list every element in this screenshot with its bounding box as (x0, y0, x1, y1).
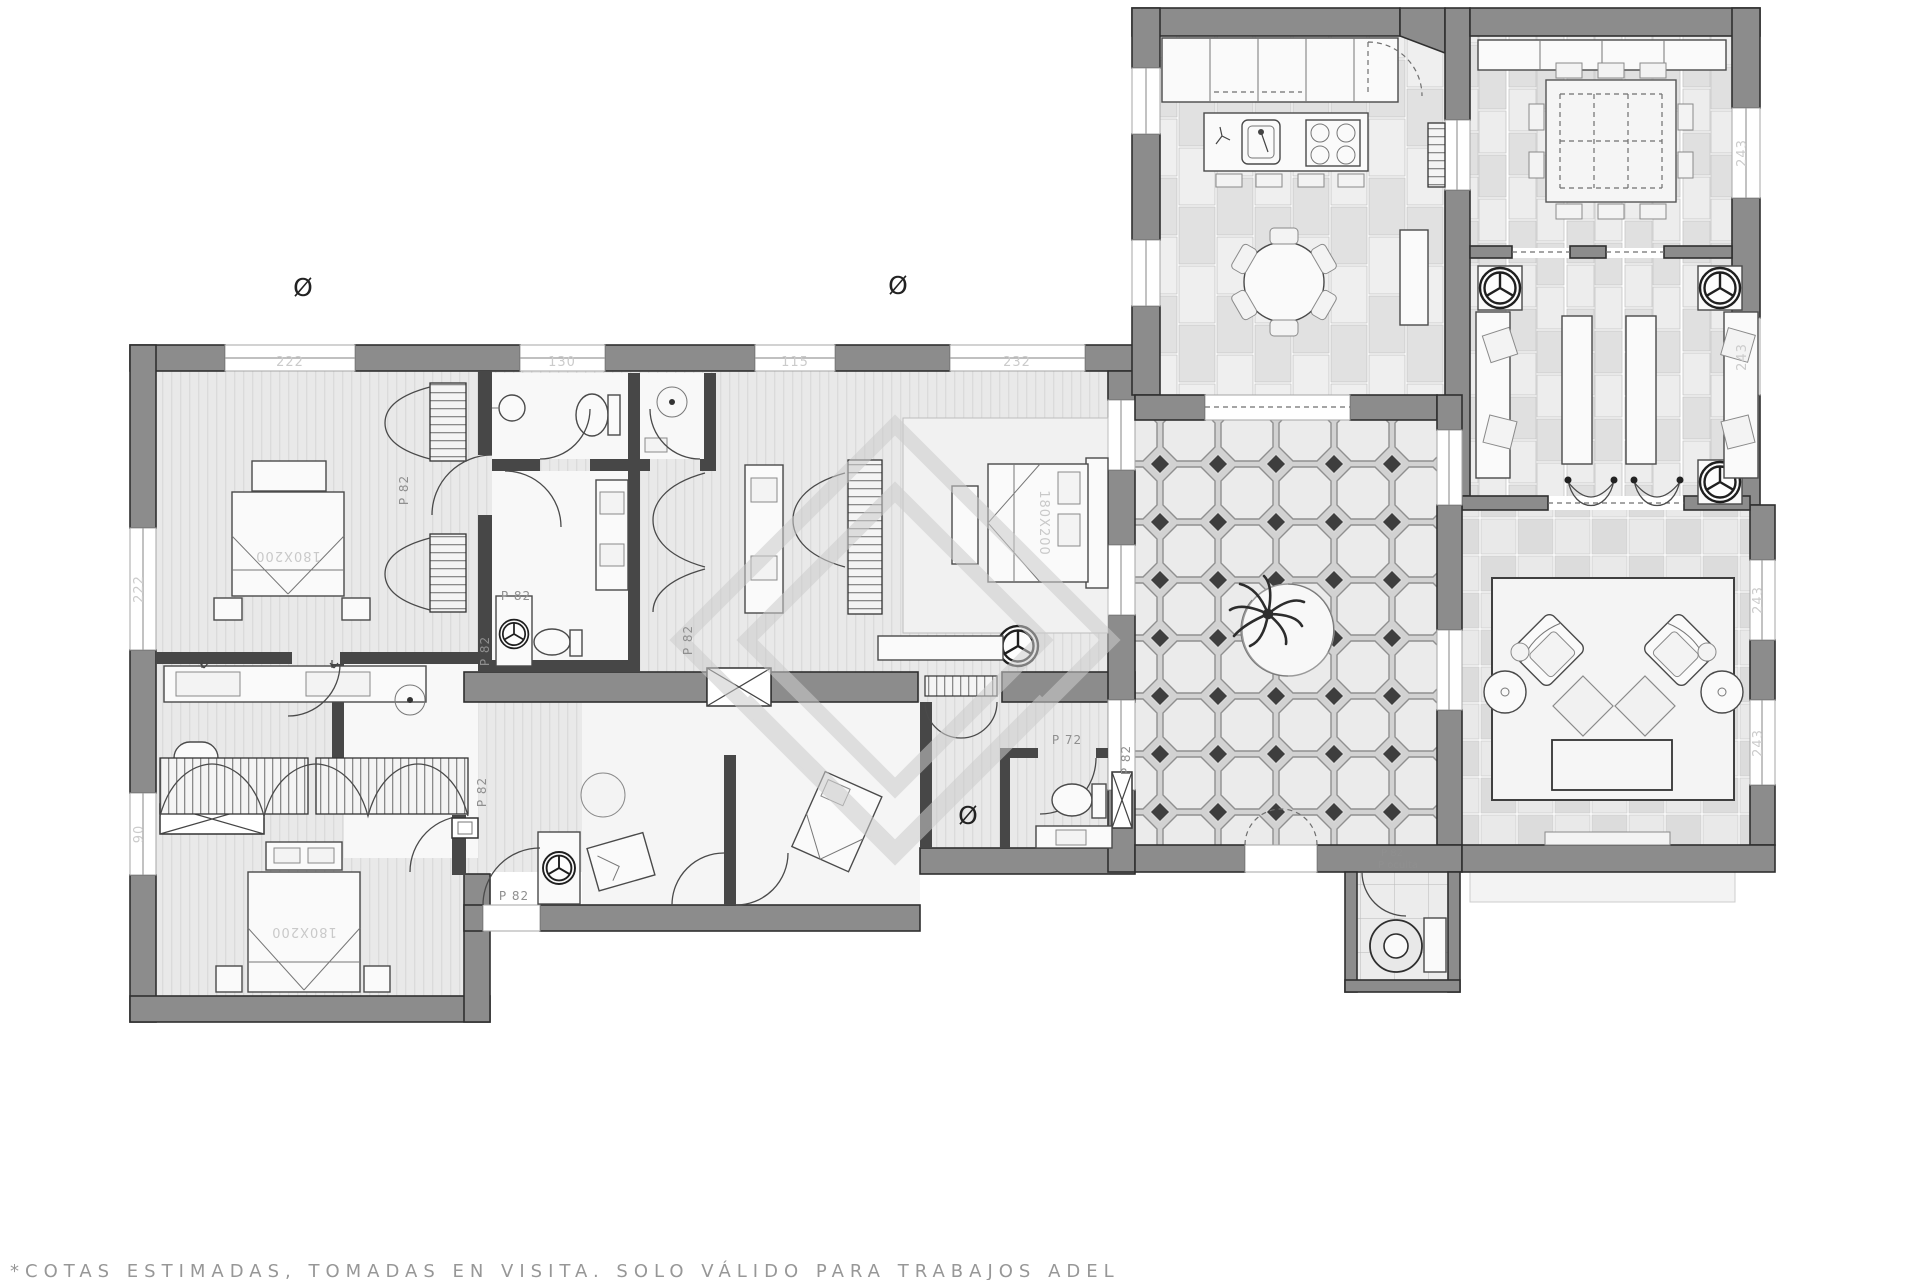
stool (1216, 174, 1242, 187)
cabinet (1424, 918, 1446, 972)
sink (600, 544, 624, 566)
door-label: P 82 (501, 589, 531, 603)
door-label: P 82 (397, 475, 411, 505)
toilet (534, 629, 570, 655)
door-label: P 82 (475, 777, 489, 807)
bed-size-label: 180X200 (1036, 490, 1051, 556)
toilet-tank (608, 395, 620, 435)
sink (600, 492, 624, 514)
bed-headboard (1086, 458, 1108, 588)
pass-through (1428, 123, 1445, 187)
pillow (308, 848, 334, 863)
floor-plan-drawing: 180X200 180X200 (0, 0, 1920, 1280)
pillow (1058, 472, 1080, 504)
door-label: P 72 (1052, 733, 1082, 747)
dim-label: 222 (276, 355, 304, 370)
side-table (1701, 671, 1743, 713)
dim-label: 130 (548, 355, 576, 370)
door-label: P 82 (1119, 745, 1133, 775)
pillow (1058, 514, 1080, 546)
door-label: P 82 (1381, 848, 1403, 859)
bed-headboard (252, 461, 326, 491)
cooktop (1306, 120, 1360, 166)
door-label: P 82 (681, 625, 695, 655)
door-label: P 82 (499, 889, 529, 903)
pillow (274, 848, 300, 863)
diameter-symbol: Ø (958, 801, 978, 830)
dining-table (1546, 80, 1676, 202)
toilet-tank (1092, 784, 1106, 818)
cushion (1721, 415, 1755, 449)
stool (1298, 174, 1324, 187)
boiler-room (1370, 918, 1446, 972)
nightstand (216, 966, 242, 992)
tall-cabinet (1400, 230, 1428, 325)
door-label: P 82 (478, 636, 492, 666)
coffee-table (1562, 316, 1592, 464)
sink (1056, 830, 1086, 845)
toilet (576, 394, 608, 436)
diameter-symbol: Ø (888, 271, 908, 300)
floor-plan-sheet: 180X200 180X200 (0, 0, 1920, 1280)
terrace-step (1470, 872, 1735, 902)
washing-machine-icon (543, 852, 575, 884)
coffee-table (1626, 316, 1656, 464)
coffee-table (1552, 740, 1672, 790)
dim-label: 222 (132, 575, 147, 603)
footer-note: *COTAS ESTIMADAS, TOMADAS EN VISITA. SOL… (10, 1261, 1120, 1280)
accent-table (1698, 643, 1716, 661)
dim-label: 115 (781, 355, 809, 370)
accent-table (1511, 643, 1529, 661)
bed-size-label: 180X200 (255, 548, 321, 563)
small-sink (645, 438, 667, 452)
dim-label: 243 (1751, 729, 1766, 757)
nightstand (342, 598, 370, 620)
hearth-step (1545, 832, 1670, 845)
side-table (1484, 671, 1526, 713)
cushion (1483, 415, 1517, 449)
bed (232, 492, 344, 596)
wardrobe (316, 758, 468, 814)
bed-size-label: 180X200 (271, 924, 337, 939)
stool (1338, 174, 1364, 187)
nightstand (214, 598, 242, 620)
sink (751, 478, 777, 502)
sink (306, 672, 370, 696)
dim-label: 90 (132, 825, 147, 844)
wardrobe (160, 758, 308, 814)
dim-label: 243 (1735, 343, 1750, 371)
toilet-tank (570, 630, 582, 656)
ceiling-fan-icon (1700, 268, 1740, 308)
pouf (581, 773, 625, 817)
dim-label: 243 (1751, 586, 1766, 614)
wardrobe (430, 534, 466, 612)
washing-machine-icon (500, 620, 529, 649)
dim-label: 232 (1003, 355, 1031, 370)
master-bedroom: 180X200 (878, 418, 1108, 666)
console-desk (878, 636, 1003, 660)
hidden-door-label: P oculta (1378, 860, 1418, 871)
diameter-symbol: Ø (293, 273, 313, 302)
stool (1256, 174, 1282, 187)
sink (499, 395, 525, 421)
dim-label: 243 (1735, 139, 1750, 167)
nightstand (364, 966, 390, 992)
wardrobe (430, 383, 466, 461)
toilet (1052, 784, 1092, 816)
ceiling-fan-icon (1480, 268, 1520, 308)
sink (176, 672, 240, 696)
